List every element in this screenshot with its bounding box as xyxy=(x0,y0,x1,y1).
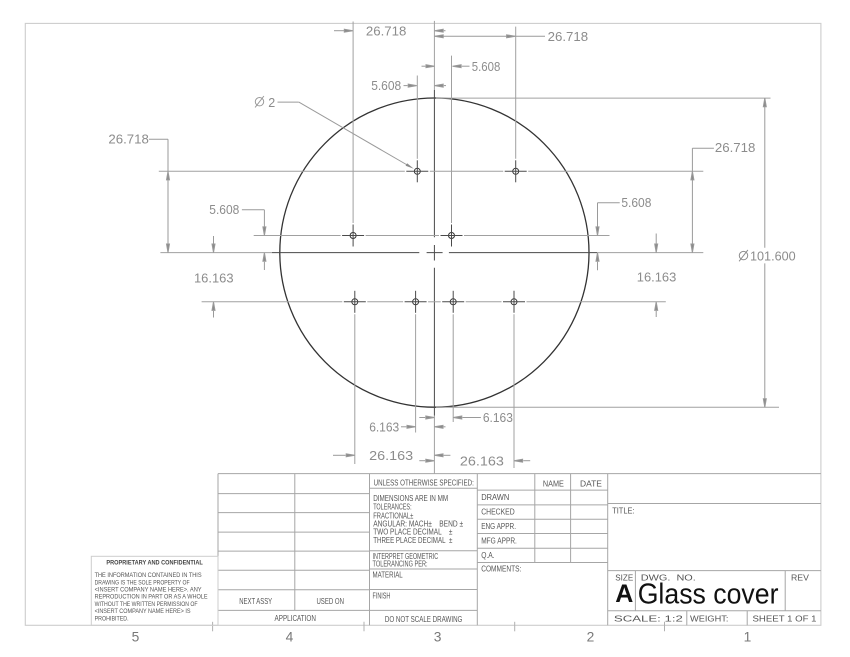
svg-text:4: 4 xyxy=(286,629,294,644)
svg-text:TOLERANCING PER:: TOLERANCING PER: xyxy=(373,559,428,568)
svg-text:ENG APPR.: ENG APPR. xyxy=(481,522,516,531)
svg-text:6.163: 6.163 xyxy=(483,411,513,425)
svg-text:3: 3 xyxy=(434,629,442,644)
svg-text:26.718: 26.718 xyxy=(715,141,756,155)
svg-text:<INSERT COMPANY NAME HERE>. A: <INSERT COMPANY NAME HERE>. ANY xyxy=(95,587,202,594)
svg-text:Glass cover: Glass cover xyxy=(638,579,779,611)
svg-text:NEXT ASSY: NEXT ASSY xyxy=(239,597,272,606)
svg-text:TITLE:: TITLE: xyxy=(612,507,634,516)
svg-text:PROPRIETARY AND CONFIDENTIAL: PROPRIETARY AND CONFIDENTIAL xyxy=(106,561,203,567)
svg-text:DRAWING IS THE SOLE PROPERTY O: DRAWING IS THE SOLE PROPERTY OF xyxy=(95,579,190,586)
svg-text:5: 5 xyxy=(132,629,140,644)
svg-text:5.608: 5.608 xyxy=(209,203,239,217)
svg-text:Q.A.: Q.A. xyxy=(481,551,494,560)
svg-text:DATE: DATE xyxy=(580,479,602,488)
svg-text:<INSERT COMPANY NAME HERE> IS: <INSERT COMPANY NAME HERE> IS xyxy=(95,608,191,615)
svg-text:USED ON: USED ON xyxy=(316,597,344,606)
svg-text:5.608: 5.608 xyxy=(371,79,401,93)
svg-text:26.163: 26.163 xyxy=(369,449,413,463)
svg-text:THE INFORMATION CONTAINED IN T: THE INFORMATION CONTAINED IN THIS xyxy=(95,572,202,579)
svg-text:FINISH: FINISH xyxy=(373,591,391,600)
svg-text:SHEET 1 OF 1: SHEET 1 OF 1 xyxy=(753,615,817,624)
svg-text:COMMENTS:: COMMENTS: xyxy=(481,564,521,573)
svg-text:26.718: 26.718 xyxy=(366,24,407,38)
svg-text:16.163: 16.163 xyxy=(194,271,234,285)
svg-text:REV: REV xyxy=(791,574,810,583)
svg-text:A: A xyxy=(615,580,633,608)
svg-text:1: 1 xyxy=(744,629,752,644)
svg-text:CHECKED: CHECKED xyxy=(481,508,515,517)
svg-text:5.608: 5.608 xyxy=(621,196,651,210)
svg-text:DO NOT SCALE DRAWING: DO NOT SCALE DRAWING xyxy=(385,615,463,624)
svg-text:PROHIBITED.: PROHIBITED. xyxy=(95,616,129,623)
svg-text:SCALE: 1:2: SCALE: 1:2 xyxy=(614,615,683,624)
svg-text:WEIGHT:: WEIGHT: xyxy=(690,615,728,624)
svg-text:WITHOUT THE WRITTEN PERMISSION: WITHOUT THE WRITTEN PERMISSION OF xyxy=(95,601,198,608)
svg-text:2: 2 xyxy=(268,96,275,110)
svg-text:2: 2 xyxy=(587,629,595,644)
svg-text:APPLICATION: APPLICATION xyxy=(275,614,316,623)
svg-text:NAME: NAME xyxy=(543,479,564,488)
svg-text:UNLESS OTHERWISE SPECIFIED:: UNLESS OTHERWISE SPECIFIED: xyxy=(374,479,474,488)
svg-text:5.608: 5.608 xyxy=(472,60,501,74)
svg-text:DRAWN: DRAWN xyxy=(481,493,509,502)
svg-text:TOLERANCES:: TOLERANCES: xyxy=(373,503,411,512)
svg-text:26.718: 26.718 xyxy=(548,30,589,44)
svg-text:16.163: 16.163 xyxy=(637,271,677,285)
svg-text:26.163: 26.163 xyxy=(460,454,504,468)
svg-text:REPRODUCTION IN PART OR AS A W: REPRODUCTION IN PART OR AS A WHOLE xyxy=(95,594,208,601)
svg-text:THREE PLACE DECIMAL ±: THREE PLACE DECIMAL ± xyxy=(373,536,453,545)
svg-text:MFG APPR.: MFG APPR. xyxy=(481,537,517,546)
svg-text:MATERIAL: MATERIAL xyxy=(373,570,404,579)
svg-text:101.600: 101.600 xyxy=(750,249,796,263)
svg-text:6.163: 6.163 xyxy=(369,420,399,434)
svg-text:26.718: 26.718 xyxy=(108,132,149,146)
